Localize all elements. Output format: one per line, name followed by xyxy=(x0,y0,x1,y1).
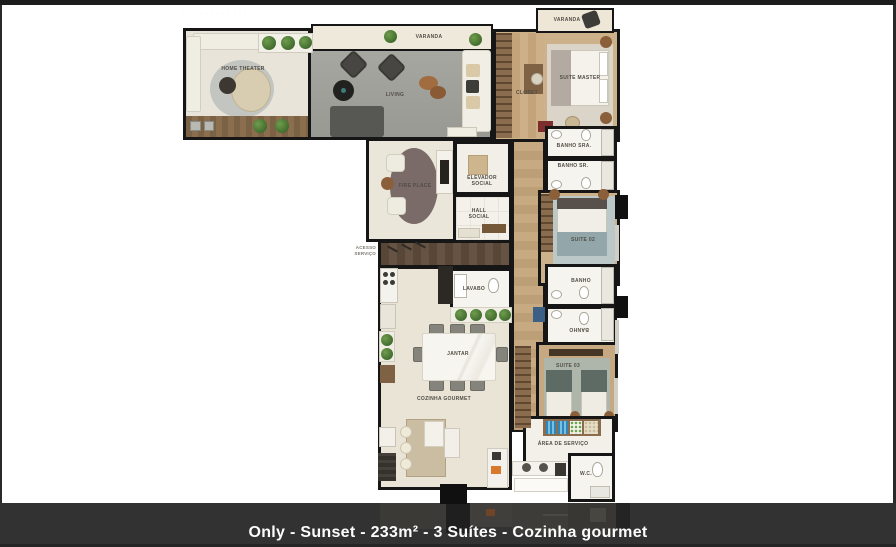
stool xyxy=(400,426,412,438)
lavabo-toilet xyxy=(488,278,499,293)
laundry-sink xyxy=(539,463,548,472)
living-ottoman-dark xyxy=(466,80,479,93)
wall-pillar xyxy=(615,296,628,318)
hall-cabinet-blue xyxy=(533,307,545,322)
nightstand xyxy=(598,189,609,200)
dining-chair xyxy=(496,347,508,362)
stool xyxy=(400,442,412,454)
plant xyxy=(469,33,482,46)
living-ottoman xyxy=(466,96,480,109)
table-decor xyxy=(341,88,346,93)
top-strip xyxy=(0,0,896,5)
burner xyxy=(383,280,388,285)
desk-chair xyxy=(531,73,543,85)
home-theater-woven-rug xyxy=(231,68,271,112)
toilet xyxy=(579,286,589,299)
plant xyxy=(384,30,397,43)
closet-label: CLOSET xyxy=(516,90,538,96)
plant xyxy=(485,309,497,321)
bathtub xyxy=(601,308,614,341)
bathtub xyxy=(601,267,614,304)
home-theater-sofa-top xyxy=(193,33,265,50)
laundry-sink xyxy=(522,463,531,472)
window xyxy=(615,225,619,261)
floorplan-slide: · · · · · · · · · · · · xyxy=(0,0,896,547)
cabinet-item-dark xyxy=(492,452,501,460)
hall-doormat xyxy=(458,228,480,238)
bathtub xyxy=(601,161,614,190)
watermark-text: · · · · · · · · · · · · xyxy=(183,11,248,16)
cozinha-gourmet-label: COZINHA GOURMET xyxy=(417,396,471,402)
shower xyxy=(601,129,614,156)
plant xyxy=(470,309,482,321)
island-counter xyxy=(424,421,444,447)
living-console xyxy=(447,127,477,137)
fireplace-armchair xyxy=(386,154,405,172)
wc-label: W.C. xyxy=(580,471,592,477)
plant xyxy=(381,334,393,346)
area-servico-label: ÁREA DE SERVIÇO xyxy=(538,441,589,447)
window xyxy=(615,320,619,354)
living-ottoman xyxy=(466,64,480,77)
corridor-acesso-servico xyxy=(378,240,512,268)
nightstand xyxy=(549,189,560,200)
plan-reflection xyxy=(590,508,606,522)
bar-cart xyxy=(380,365,395,383)
home-theater-sofa-left xyxy=(186,36,201,112)
acesso-servico-label: ACESSO SERVIÇO xyxy=(354,245,376,257)
banho-sra-label: BANHO SRA. xyxy=(557,143,592,149)
jantar-label: JANTAR xyxy=(447,351,469,357)
plant xyxy=(253,119,267,133)
living-label: LIVING xyxy=(386,92,404,98)
bed-blanket xyxy=(557,232,607,256)
banho-suite03-a-label: BANHO xyxy=(571,278,591,284)
home-theater-coffee-table xyxy=(219,77,236,94)
fireplace-side-table xyxy=(381,177,394,190)
deck-box xyxy=(204,121,214,131)
room-varanda-living xyxy=(311,24,493,51)
caption-text: Only - Sunset - 233m² - 3 Suítes - Cozin… xyxy=(0,524,896,542)
bed-headboard xyxy=(557,198,607,209)
living-side-table xyxy=(430,86,446,99)
sink xyxy=(551,310,562,319)
laundry-item-blue xyxy=(558,421,568,434)
entry-door-block xyxy=(440,484,467,504)
lavabo-label: LAVABO xyxy=(463,286,485,292)
range-unit xyxy=(378,453,396,481)
deck-box xyxy=(190,121,201,131)
hall-console xyxy=(482,224,506,233)
suite-master-label: SUITE MASTER xyxy=(560,75,601,81)
toilet xyxy=(579,312,589,325)
home-theater-label: HOME THEATER xyxy=(221,66,264,72)
nightstand xyxy=(600,112,612,124)
tall-dark-cabinet xyxy=(438,266,453,304)
bed-blanket xyxy=(581,370,607,392)
fire-place-label: FIRE PLACE xyxy=(399,183,432,189)
sink xyxy=(551,180,562,189)
laundry-item-basket xyxy=(584,421,598,434)
burner xyxy=(390,280,395,285)
suite-03-label: SUITE 03 xyxy=(556,363,580,369)
sink xyxy=(551,290,562,299)
burner xyxy=(383,272,388,277)
laundry-appliance xyxy=(555,463,566,476)
bed-pillow xyxy=(599,79,608,103)
toilet xyxy=(581,129,591,141)
plant xyxy=(262,36,276,50)
toilet xyxy=(592,462,603,477)
plant xyxy=(381,348,393,360)
fireplace-insert xyxy=(440,160,449,184)
kitchen-counter xyxy=(444,428,460,458)
laundry-item-green xyxy=(570,421,582,434)
suite-02-label: SUITE 02 xyxy=(571,237,595,243)
hall-social-label: HALL SOCIAL xyxy=(469,208,490,221)
cabinet-item-orange xyxy=(491,466,501,474)
burner xyxy=(390,272,395,277)
suite-03-shelf xyxy=(549,349,603,356)
bed-blanket xyxy=(546,370,572,392)
bed-pillow xyxy=(599,52,608,76)
laundry-cabinets xyxy=(514,478,568,492)
elevator-cab xyxy=(468,155,488,175)
plan-reflection xyxy=(486,509,495,516)
varanda-living-label: VARANDA xyxy=(416,34,443,40)
plant xyxy=(299,36,312,49)
plant xyxy=(499,309,511,321)
stool xyxy=(400,458,412,470)
oven-column xyxy=(380,304,396,329)
shower xyxy=(590,486,610,498)
wall-pillar xyxy=(615,195,628,219)
left-border xyxy=(0,5,2,503)
plant xyxy=(455,309,467,321)
kitchen-sink xyxy=(379,427,396,447)
suite-03-wardrobe xyxy=(515,346,531,428)
living-sofa-gray xyxy=(330,106,384,137)
sink xyxy=(551,130,562,139)
closet-wardrobe xyxy=(496,33,512,138)
toilet xyxy=(581,177,591,189)
suite-02-wardrobe xyxy=(541,194,553,252)
nightstand xyxy=(600,36,612,48)
laundry-item-blue xyxy=(546,421,556,434)
plant xyxy=(281,36,295,50)
window xyxy=(614,378,618,414)
varanda-master-label: VARANDA xyxy=(554,17,581,23)
banho-sr-label: BANHO SR. xyxy=(558,163,589,169)
elevador-social-label: ELEVADOR SOCIAL xyxy=(467,175,497,188)
fireplace-armchair xyxy=(387,197,406,215)
plant xyxy=(275,119,289,133)
banho-suite03-b-label: BANHO xyxy=(569,326,589,332)
